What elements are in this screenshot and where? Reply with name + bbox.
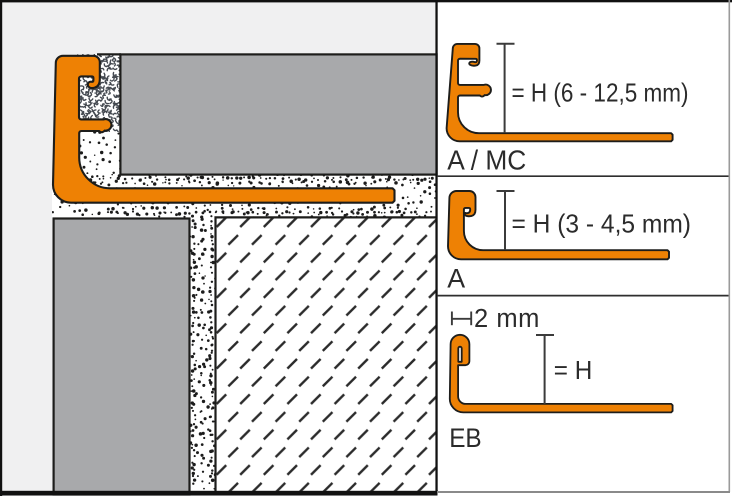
svg-text:A / MC: A / MC [447, 144, 526, 175]
svg-text:= H: = H [554, 357, 593, 385]
svg-text:A: A [447, 263, 465, 293]
svg-text:2 mm: 2 mm [474, 305, 540, 333]
svg-text:= H (6 - 12,5 mm): = H (6 - 12,5 mm) [512, 78, 689, 108]
svg-text:EB: EB [449, 423, 482, 453]
svg-text:= H (3 - 4,5 mm): = H (3 - 4,5 mm) [512, 208, 692, 238]
